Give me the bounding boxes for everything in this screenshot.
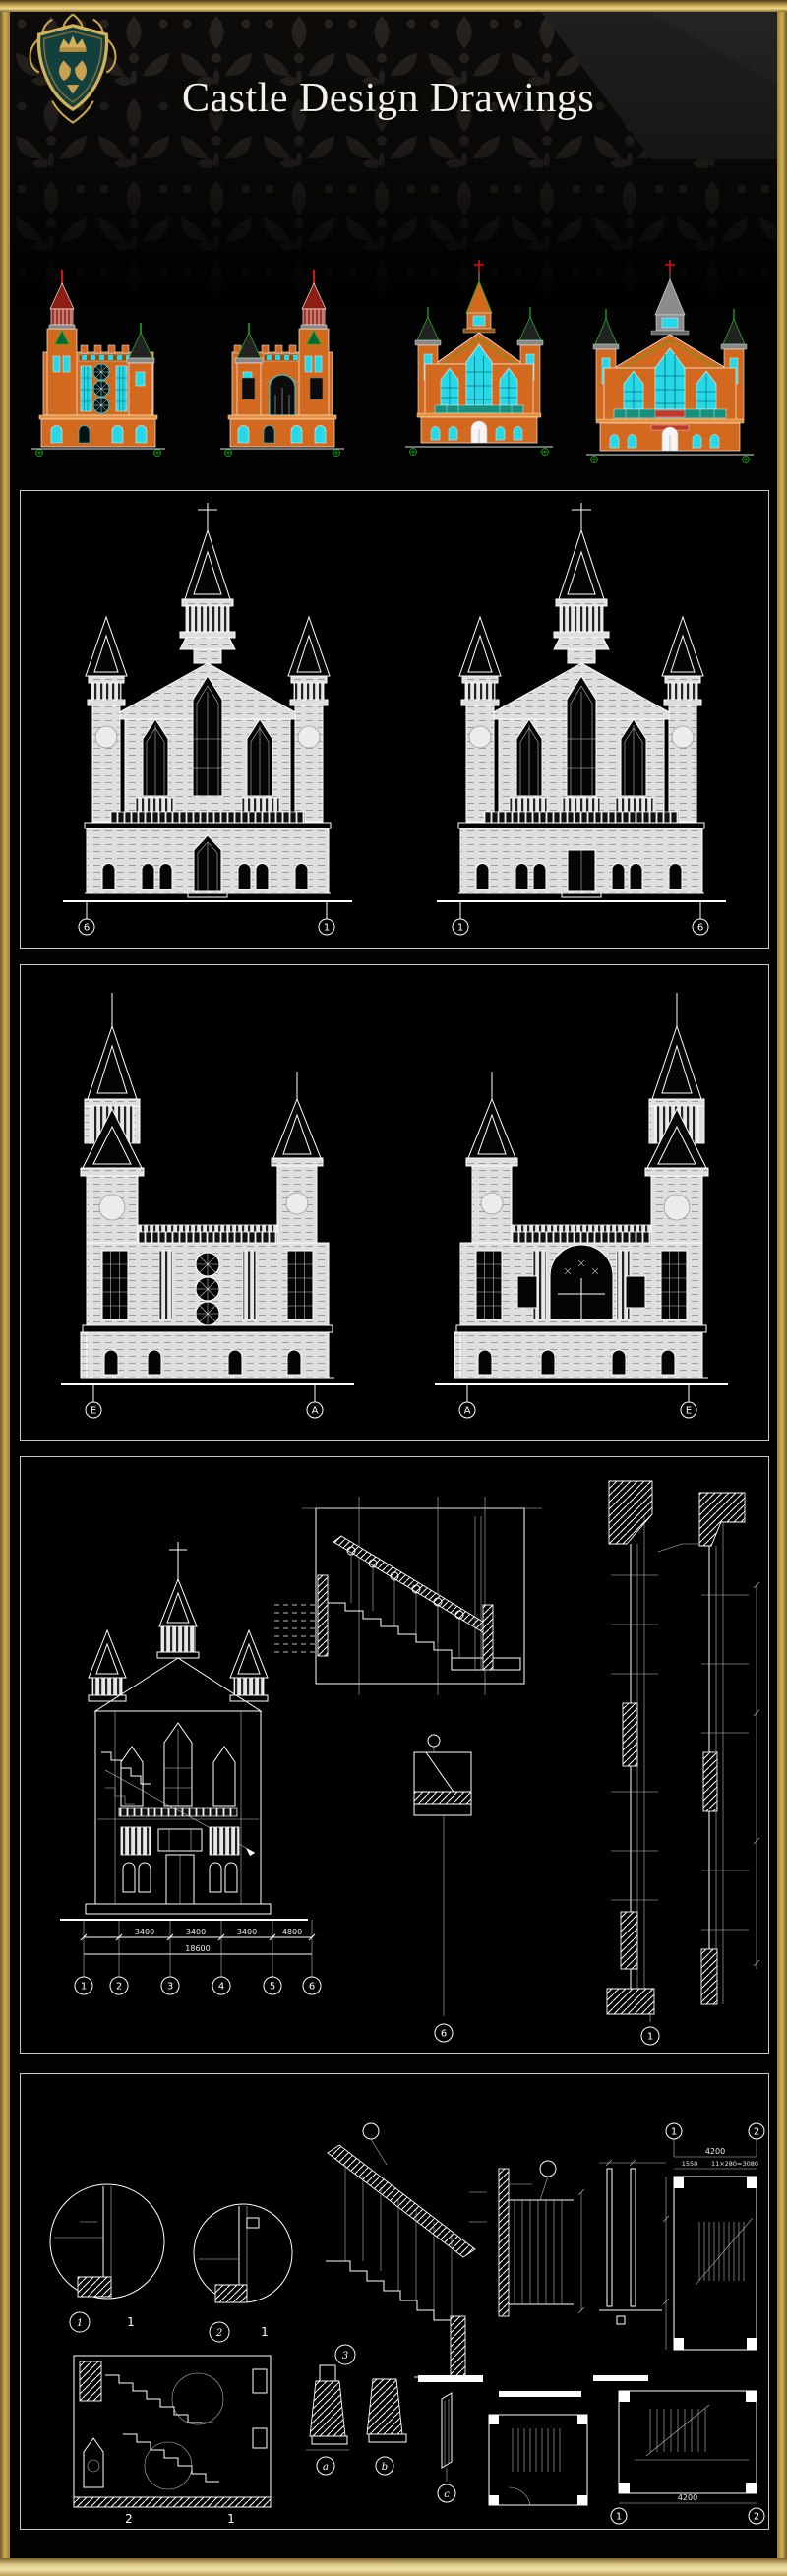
wall-section-detail-a: [607, 1481, 699, 2022]
stair-section-detail: [274, 1497, 542, 1695]
pedestal-detail-a: a: [306, 2365, 349, 2475]
cad-side-elevation-right: A E: [419, 981, 744, 1422]
grid-bubble-label: 6: [84, 923, 90, 934]
pedestal-detail-b: b: [367, 2379, 406, 2475]
detail-circle-1: 1 1: [50, 2184, 164, 2332]
poster-inner: Castle Design Drawings: [10, 12, 777, 2558]
dim-label: 3400: [237, 1928, 257, 1936]
stair-plan-top: 1 2 4200 1550 11×280=3080: [663, 2123, 764, 2350]
section-number-label: 2: [125, 2512, 133, 2526]
cad-front-elevation-left: 6 1: [45, 497, 370, 940]
dim-label: 4200: [705, 2147, 725, 2156]
dim-label: 11×280=3080: [711, 2160, 758, 2168]
grid-bubble-label: 1: [671, 2127, 677, 2138]
grid-bubble-label: 5: [270, 1982, 275, 1993]
letter-bubble-label: b: [382, 2462, 388, 2473]
dim-label: 3400: [135, 1928, 154, 1936]
scale-bar: [418, 2375, 483, 2382]
building-section-drawing: [60, 1542, 308, 1920]
panel-construction-details: 1 1 2 1: [20, 2073, 769, 2530]
scale-bar: [593, 2375, 648, 2381]
cad-side-elevation-left: E A: [45, 981, 370, 1422]
colored-church-elevation-3: [401, 258, 557, 462]
frame-top-border: [0, 0, 787, 12]
panel-section-details: 3400 3400 3400 4800 18600 1 2 3 4 5 6: [20, 1456, 769, 2054]
detail-ref-label: 1: [261, 2325, 269, 2339]
stair-plan-mid: [489, 2415, 587, 2505]
stair-balustrade-detail: 3: [326, 2123, 487, 2377]
wall-rail-detail: [499, 2161, 584, 2316]
colored-church-elevation-4: [582, 258, 757, 466]
detail-bubble-label: 1: [77, 2318, 83, 2329]
dim-label: 4200: [678, 2493, 697, 2502]
panel-front-elevations: 6 1: [20, 490, 769, 949]
grid-bubble-label: A: [464, 1406, 471, 1417]
colored-castle-elevation-2: [218, 262, 346, 459]
grid-bubble-label: 6: [697, 923, 703, 934]
cad-front-elevation-right: 1 6: [419, 497, 744, 940]
grid-bubble-label: 3: [167, 1982, 173, 1993]
baluster-detail-c: c: [438, 2393, 455, 2502]
scale-bar: [499, 2391, 581, 2397]
wall-section-detail-b: [699, 1493, 759, 2004]
grid-bubble-label: 2: [116, 1982, 122, 1993]
colored-castle-elevation-1: [30, 262, 167, 459]
detail-ref-label: 1: [127, 2315, 135, 2329]
baluster-pair-detail: [599, 2160, 666, 2324]
cad-details-sheet: 1 1 2 1: [21, 2074, 766, 2527]
grid-bubble-label: 1: [616, 2512, 622, 2523]
cad-section-sheet: 3400 3400 3400 4800 18600 1 2 3 4 5 6: [21, 1457, 766, 2051]
grid-bubble-label: 1: [81, 1982, 87, 1993]
bracket-detail: [414, 1735, 471, 2016]
crest-logo-icon: [22, 8, 124, 128]
section-number-label: 1: [227, 2512, 235, 2526]
detail-bubble-label: 6: [441, 2029, 447, 2040]
letter-bubble-label: a: [323, 2462, 329, 2473]
detail-circle-2: 2 1: [194, 2204, 292, 2342]
panel-side-elevations: E A: [20, 964, 769, 1441]
section-dimensions: 3400 3400 3400 4800 18600 1 2 3 4 5 6: [75, 1920, 321, 1994]
dim-total-label: 18600: [185, 1944, 210, 1953]
dim-label: 3400: [186, 1928, 206, 1936]
grid-bubble-label: E: [91, 1406, 96, 1417]
grid-bubble-label: 2: [754, 2127, 759, 2138]
grid-bubble-label: A: [312, 1406, 319, 1417]
grid-bubble-label: 4: [218, 1982, 224, 1993]
grid-bubble-label: 1: [457, 923, 463, 934]
grid-bubble-label: 1: [324, 923, 330, 934]
stair-section-lower: 2 1: [74, 2356, 271, 2526]
dim-label: 4800: [282, 1928, 302, 1936]
page-title: Castle Design Drawings: [182, 75, 594, 122]
detail-bubble-label: 1: [647, 2032, 653, 2043]
stair-plan-bottom: 4200 1 2: [611, 2391, 764, 2524]
detail-bubble-label: 3: [342, 2351, 348, 2361]
detail-bubble-label: 2: [215, 2328, 222, 2339]
frame-bottom-border: [0, 2558, 787, 2576]
grid-bubble-label: E: [686, 1406, 692, 1417]
grid-bubble-label: 6: [309, 1982, 315, 1993]
poster: Castle Design Drawings: [0, 0, 787, 2576]
grid-bubble-label: 2: [754, 2512, 759, 2523]
dim-label: 1550: [682, 2160, 698, 2168]
letter-bubble-label: c: [444, 2489, 450, 2500]
